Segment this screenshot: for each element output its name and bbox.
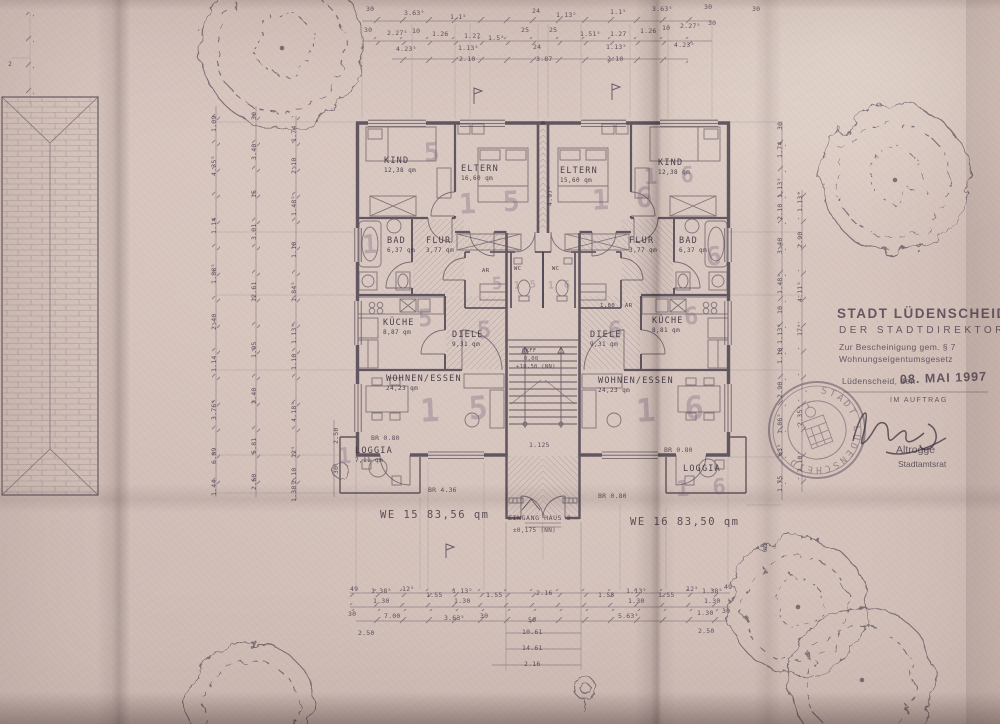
dim-label: 24 (533, 43, 541, 51)
dim-label: 1.38⁵ (290, 481, 298, 502)
dim-label: 3.40 (776, 238, 784, 254)
dim-label: 1.30 (373, 597, 389, 605)
dim-label: 2.27⁵ (680, 22, 701, 30)
dim-label: 2.35⁵ (796, 405, 804, 426)
dim-label: 1.30 (704, 597, 720, 605)
dim-label: 4.23⁵ (674, 41, 695, 49)
dim-label: 10 (662, 24, 670, 32)
dim-label: 2.40 (250, 388, 258, 404)
dim-label: 30 (366, 5, 374, 13)
dim-label: 1.51⁵ (580, 30, 601, 38)
dim-label: 1.55 (658, 591, 674, 599)
dim-label: 3.01 (250, 224, 258, 240)
dim-label: 10 (776, 306, 784, 314)
dim-label: 2.50 (358, 629, 374, 637)
dim-label: 25 (521, 26, 529, 34)
dim-label: 1.84⁵ (290, 281, 298, 302)
dim-label: 25 (549, 26, 557, 34)
dim-label: 30 (704, 3, 712, 11)
dim-label: 2.40 (210, 314, 218, 330)
dim-label: 1.13⁵ (626, 587, 647, 595)
dim-label: 30 (722, 607, 730, 615)
dim-label: 2.90 (796, 232, 804, 248)
dim-label: 1.27 (610, 30, 626, 38)
dim-label: 2.50 (332, 428, 340, 444)
dim-label: 5.81 (250, 438, 258, 454)
dim-label: 1.30 (628, 597, 644, 605)
dim-label: 3.76⁵ (210, 399, 218, 420)
dim-label: 3.63⁵ (404, 9, 425, 17)
dim-label: 1.13⁵ (452, 587, 473, 595)
dim-label: 2.10 (290, 158, 298, 174)
scanned-floor-plan-page: · STADT LÜDENSCHEID · KIND 12,38 qm 5 EL… (0, 0, 1000, 724)
dim-label: 5.63⁵ (618, 612, 639, 620)
dim-label: 3.40 (250, 144, 258, 160)
dim-label: 1.55 (426, 591, 442, 599)
dim-label: 1.14 (210, 218, 218, 234)
dim-label: 12⁵ (686, 585, 698, 593)
dim-label: 1.86⁵ (776, 413, 784, 434)
dim-label: 1.13⁵ (606, 43, 627, 51)
dim-label: 1.74 (776, 142, 784, 158)
dim-label: 1.75 (776, 476, 784, 492)
dim-label: 4.97⁵ (546, 185, 554, 206)
dim-label: 2.50 (698, 627, 714, 635)
dim-label: 10 (412, 27, 420, 35)
dim-label: 24 (532, 7, 540, 15)
dim-label: 1.13⁵ (776, 323, 784, 344)
dim-label: 1.10 (776, 348, 784, 364)
dim-label: 4.23⁵ (396, 45, 417, 53)
dim-label: 1.38⁵ (371, 587, 392, 595)
dim-label: 2.90 (776, 382, 784, 398)
dim-label: 30 (348, 610, 356, 618)
dim-label: 1.1⁵ (450, 13, 466, 21)
dim-label: 1.95 (250, 342, 258, 358)
dim-label: 1.44 (210, 480, 218, 496)
dim-label: 30 (332, 466, 340, 474)
dim-label: BR 4.36 (428, 486, 457, 494)
dim-label: 1.13⁵ (556, 11, 577, 19)
dim-label: 2.16 (536, 589, 552, 597)
dim-label: 2.10 (459, 55, 475, 63)
dimension-annotations: 303.63⁵1.1⁵241.13⁵1.1⁵3.63⁵3030302.27⁵10… (0, 0, 1000, 724)
dim-label: 7.00 (384, 612, 400, 620)
dim-label: 1.38⁵ (702, 587, 723, 595)
dim-label: 2.27⁵ (387, 29, 408, 37)
dim-label: 1.55 (598, 591, 614, 599)
dim-label: 63⁵ (776, 444, 784, 456)
dim-label: 30 (752, 5, 760, 13)
dim-label: 1.13⁵ (458, 44, 479, 52)
dim-label: 1.5⁵ (488, 34, 504, 42)
dim-label: 1.10 (290, 354, 298, 370)
dim-label: 1.30 (697, 609, 713, 617)
dim-label: 3.63⁵ (652, 5, 673, 13)
dim-label: 49 (350, 585, 358, 593)
dim-label: 1.88⁵ (210, 263, 218, 284)
dim-label: 12⁵ (290, 446, 298, 458)
dim-label: 1.30 (454, 597, 470, 605)
dim-label: 2.10 (796, 456, 804, 472)
dim-label: 1.14 (210, 356, 218, 372)
dim-label: 4.11⁵ (796, 281, 804, 302)
dim-label: 1.10 (290, 242, 298, 258)
dim-label: 1.26 (640, 27, 656, 35)
dim-label: 1.55 (486, 591, 502, 599)
dim-label: 12.61 (250, 281, 258, 302)
dim-label: 4.18⁵ (290, 401, 298, 422)
dim-label: 2 (8, 60, 12, 68)
dim-label: 30 (708, 19, 716, 27)
dim-label: 1.125 (529, 441, 550, 449)
dim-label: 1.27 (464, 32, 480, 40)
dim-label: 1.13⁵ (796, 191, 804, 212)
dim-label: BR 0.80 (664, 446, 693, 454)
dim-label: 2.10 (776, 204, 784, 220)
dim-label: 1.13⁵ (776, 177, 784, 198)
dim-label: 1.48⁵ (776, 273, 784, 294)
dim-label: 1.13⁵ (290, 323, 298, 344)
dim-label: 2.10 (607, 55, 623, 63)
dim-label: 1.1⁵ (610, 8, 626, 16)
dim-label: 4.35⁵ (210, 155, 218, 176)
dim-label: 17⁵ (796, 324, 804, 336)
dim-label: BR 0.80 (371, 434, 400, 442)
dim-label: 30 (364, 26, 372, 34)
dim-label: 30 (776, 122, 784, 130)
dim-label: 1.74 (290, 126, 298, 142)
dim-label: 10.61 (522, 628, 543, 636)
dim-label: 3.63⁵ (444, 614, 465, 622)
dim-label: 2.16 (524, 660, 540, 668)
dim-label: 14.61 (522, 644, 543, 652)
dim-label: 50 (528, 616, 536, 624)
dim-label: 2.60 (250, 474, 258, 490)
dim-label: 49 (724, 583, 732, 591)
dim-label: 30 (480, 612, 488, 620)
dim-label: 30 (250, 112, 258, 120)
dim-label: 1.09 (210, 116, 218, 132)
dim-label: 6.09 (210, 448, 218, 464)
dim-label: 1.48⁵ (290, 195, 298, 216)
dim-label: 15 (250, 190, 258, 198)
dim-label: 1.26 (432, 30, 448, 38)
dim-label: 12⁵ (402, 585, 414, 593)
dim-label: 3.87 (536, 55, 552, 63)
dim-label: BR 0.80 (598, 492, 627, 500)
